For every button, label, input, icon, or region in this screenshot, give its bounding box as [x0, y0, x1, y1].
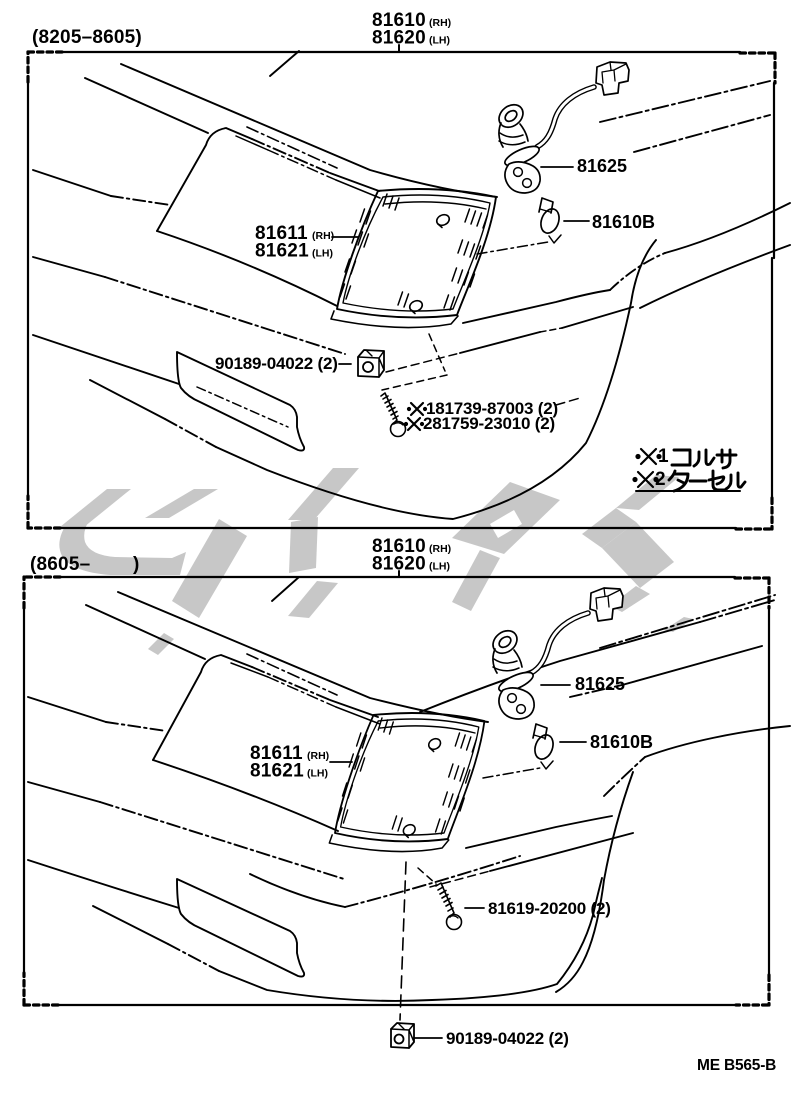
svg-text:81621: 81621 [250, 761, 304, 782]
svg-text:81619-20200 (2): 81619-20200 (2) [488, 899, 611, 918]
svg-text:): ) [133, 554, 140, 575]
svg-text:ME B565-B: ME B565-B [697, 1057, 776, 1074]
svg-text:(LH): (LH) [312, 248, 333, 260]
svg-text:81610B: 81610B [590, 732, 653, 752]
svg-text:81621: 81621 [255, 241, 309, 262]
svg-text:2: 2 [655, 469, 666, 490]
svg-text:(8205–8605): (8205–8605) [32, 27, 142, 48]
svg-text:(RH): (RH) [429, 17, 451, 29]
svg-text:(LH): (LH) [429, 35, 450, 47]
svg-text:90189-04022 (2): 90189-04022 (2) [215, 354, 338, 373]
svg-text:(RH): (RH) [312, 230, 334, 242]
svg-text:(RH): (RH) [307, 750, 329, 762]
svg-text:(LH): (LH) [429, 561, 450, 573]
svg-text:281759-23010 (2): 281759-23010 (2) [423, 414, 555, 433]
svg-text:81625: 81625 [577, 156, 627, 176]
svg-text:90189-04022 (2): 90189-04022 (2) [446, 1029, 569, 1048]
svg-text:(LH): (LH) [307, 768, 328, 780]
svg-text:81625: 81625 [575, 674, 625, 694]
svg-text:(RH): (RH) [429, 543, 451, 555]
svg-text:81610B: 81610B [592, 212, 655, 232]
svg-text:1: 1 [658, 446, 669, 467]
svg-text:(8605–: (8605– [30, 554, 90, 575]
